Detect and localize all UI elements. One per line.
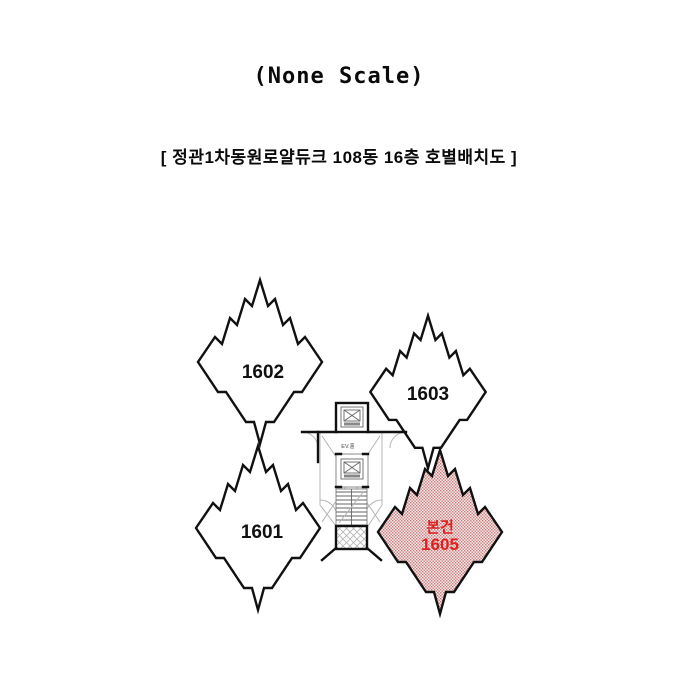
floor-plan: EV.홀 1602 1603 1601 본 xyxy=(0,0,678,700)
lobby-wall-right xyxy=(368,432,382,526)
unit-1602-label: 1602 xyxy=(242,362,284,383)
subject-unit-label: 1605 xyxy=(421,535,459,554)
door-arc-1602 xyxy=(302,432,318,448)
unit-1603-label: 1603 xyxy=(407,384,449,405)
unit-1601-label: 1601 xyxy=(241,522,284,543)
shaft-hatch-icon xyxy=(336,526,367,549)
door-arc-1603 xyxy=(390,432,406,448)
subject-unit-tag: 본건 xyxy=(426,519,454,536)
elevator-hall-label: EV.홀 xyxy=(341,442,354,450)
page: (None Scale) [ 정관1차동원로얄듀크 108동 16층 호별배치도… xyxy=(0,0,678,700)
stairs-icon xyxy=(336,489,367,525)
lobby-wall-left xyxy=(320,432,336,526)
